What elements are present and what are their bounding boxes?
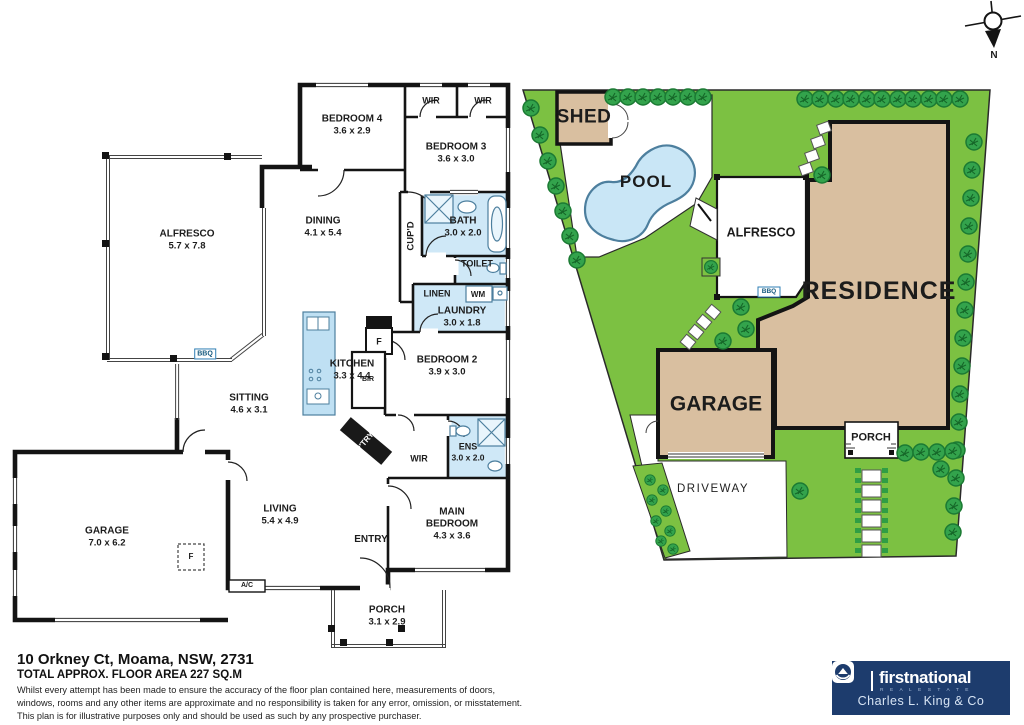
property-address: 10 Orkney Ct, Moama, NSW, 2731 xyxy=(17,651,254,668)
brand-text: firstnational R E A L E S T A T E xyxy=(879,668,971,693)
agency-name: Charles L. King & Co xyxy=(858,694,985,708)
disclaimer-line: This plan is for illustrative purposes o… xyxy=(17,710,522,723)
label-toilet: TOILET xyxy=(461,259,493,270)
label-site-alfresco: ALFRESCO xyxy=(727,226,796,241)
site-plan xyxy=(523,89,990,560)
label-site-bbq: BBQ xyxy=(762,288,776,296)
label-ens: ENS 3.0 x 2.0 xyxy=(451,442,484,463)
disclaimer-line: Whilst every attempt has been made to en… xyxy=(17,684,522,697)
label-site-porch: PORCH xyxy=(851,431,891,444)
label-site-pool: POOL xyxy=(620,172,672,192)
label-bedroom4: BEDROOM 4 3.6 x 2.9 xyxy=(322,113,383,136)
label-bath: BATH 3.0 x 2.0 xyxy=(445,215,482,238)
label-site-driveway: DRIVEWAY xyxy=(677,483,749,497)
label-site-residence: RESIDENCE xyxy=(802,276,957,306)
label-ac: A/C xyxy=(241,582,253,590)
kitchen-wall-stub xyxy=(366,316,392,328)
label-sitting: SITTING 4.6 x 3.1 xyxy=(229,392,268,415)
label-linen: LINEN xyxy=(424,289,451,300)
compass-north-label: N xyxy=(990,50,997,62)
label-wir-top-left: WIR xyxy=(422,96,440,107)
floorplan-page: BEDROOM 4 3.6 x 2.9 WIR WIR BEDROOM 3 3.… xyxy=(0,0,1024,725)
firstnational-icon xyxy=(832,661,854,683)
disclaimer-line: windows, rooms and any other items are a… xyxy=(17,697,522,710)
label-bbq: BBQ xyxy=(194,348,216,359)
label-wm: WM xyxy=(471,290,485,300)
label-entry: ENTRY xyxy=(354,534,388,546)
brand-tagline: R E A L E S T A T E xyxy=(879,688,971,693)
label-cupd: CUP'D xyxy=(405,221,416,250)
brand-name: firstnational xyxy=(879,668,971,688)
label-site-shed: SHED xyxy=(557,107,612,130)
label-site-garage: GARAGE xyxy=(670,391,762,416)
alfresco-structure xyxy=(107,155,266,420)
label-main-bedroom: MAIN BEDROOM 4.3 x 3.6 xyxy=(415,506,489,541)
compass-icon xyxy=(965,1,1021,48)
label-garage: GARAGE 7.0 x 6.2 xyxy=(85,525,129,548)
hedge-row-top-right xyxy=(797,91,968,107)
label-living: LIVING 5.4 x 4.9 xyxy=(262,503,299,526)
label-wir-main: WIR xyxy=(410,454,428,465)
label-wir-top-right: WIR xyxy=(474,96,492,107)
disclaimer: Whilst every attempt has been made to en… xyxy=(17,684,522,723)
plans-canvas xyxy=(0,0,1024,725)
label-dining: DINING 4.1 x 5.4 xyxy=(305,215,342,238)
label-bedroom3: BEDROOM 3 3.6 x 3.0 xyxy=(426,141,487,164)
label-porch: PORCH 3.1 x 2.9 xyxy=(369,604,406,627)
label-garage-fridge: F xyxy=(189,552,194,562)
label-bir: BIR xyxy=(362,376,374,384)
floor-area-note: TOTAL APPROX. FLOOR AREA 227 SQ.M xyxy=(17,669,242,681)
agency-logo: firstnational R E A L E S T A T E Charle… xyxy=(832,661,1010,715)
label-alfresco: ALFRESCO 5.7 x 7.8 xyxy=(160,228,215,251)
label-laundry: LAUNDRY 3.0 x 1.8 xyxy=(438,305,487,328)
logo-brand-row: firstnational R E A L E S T A T E xyxy=(871,668,971,693)
label-fridge: F xyxy=(376,337,382,348)
logo-divider xyxy=(871,671,873,691)
label-bedroom2: BEDROOM 2 3.9 x 3.0 xyxy=(417,354,478,377)
